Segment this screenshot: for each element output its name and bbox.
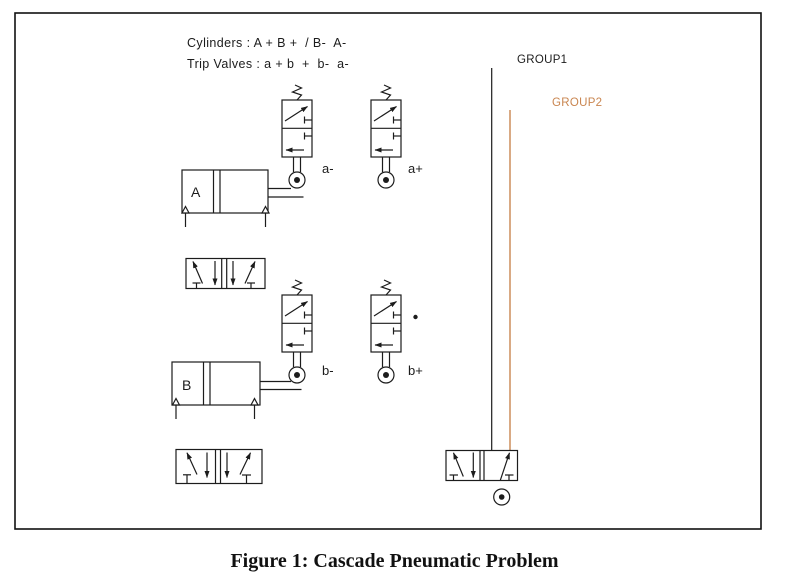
sequence-line-trip-valves: Trip Valves : a + b + b- a- <box>187 57 349 72</box>
trip-valve-a-plus <box>371 85 401 188</box>
sequence-line-cylinders: Cylinders : A + B + / B- A- <box>187 36 347 51</box>
cylinder-b <box>172 362 302 419</box>
trip-valve-a-plus-label: a+ <box>408 161 423 177</box>
pneumatic-circuit-diagram <box>0 0 789 579</box>
trip-valve-b-plus-label: b+ <box>408 363 423 379</box>
valve-5-2-b <box>176 450 262 484</box>
trip-valve-a-minus <box>282 85 312 188</box>
diagram-border <box>15 13 761 529</box>
dot-marker <box>413 315 417 319</box>
valve-5-2-a <box>186 259 265 289</box>
group2-label: GROUP2 <box>552 97 602 111</box>
trip-valve-b-minus-label: b- <box>322 363 334 379</box>
figure-caption: Figure 1: Cascade Pneumatic Problem <box>0 550 789 573</box>
trip-valve-a-minus-label: a- <box>322 161 334 177</box>
trip-valve-b-plus <box>371 280 401 383</box>
cylinder-a-label: A <box>191 184 200 201</box>
group1-label: GROUP1 <box>517 54 567 68</box>
trip-valve-b-minus <box>282 280 312 383</box>
group-valve <box>446 451 518 506</box>
cascade-pneumatic-figure: Cylinders : A + B + / B- A- Trip Valves … <box>0 0 789 579</box>
cylinder-b-label: B <box>182 377 191 394</box>
